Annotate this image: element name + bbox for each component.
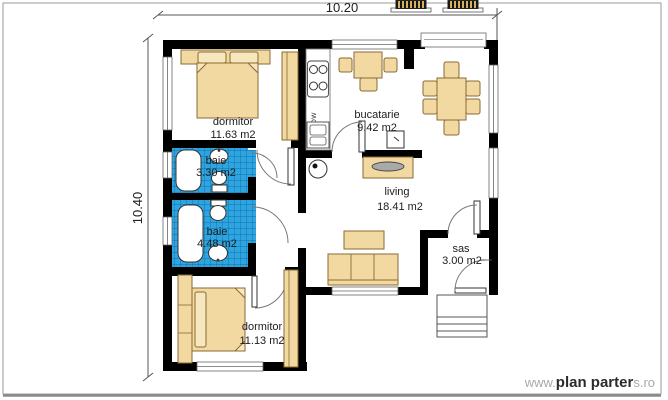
label-baie-large-name: baie [207, 226, 228, 238]
label-bucatarie-area: 9.42 m2 [357, 122, 397, 134]
watermark: www.plan parters.ro [524, 374, 655, 391]
label-dormitor-top-area: 11.63 m2 [210, 129, 255, 141]
dimension-top-width: 10.20 [326, 0, 359, 15]
door-bath-large [252, 207, 288, 243]
dimension-left-height: 10.40 [130, 192, 145, 225]
kitchen-table [354, 52, 382, 78]
label-sas-area: 3.00 m2 [442, 255, 482, 267]
window-dining-right [489, 65, 498, 133]
floor-plan-screenshot: 10.20 10.40 [0, 0, 668, 400]
entrance-steps [437, 295, 487, 337]
page-frame [3, 3, 661, 396]
watermark-brand: plan parter [556, 374, 634, 391]
stove-fireplace [309, 160, 327, 178]
chimney-symbols [391, 1, 483, 13]
window-bath-small [163, 152, 172, 178]
door-living-sas [448, 201, 480, 234]
label-dormitor-bottom-area: 11.13 m2 [239, 335, 284, 347]
living-furniture [309, 157, 413, 285]
wardrobe-bottom-right [284, 270, 298, 367]
kitchen-furniture: DW [306, 49, 404, 150]
window-kitchen [332, 40, 397, 49]
door-bedroom-bottom [252, 276, 287, 308]
window-living-right [489, 148, 498, 198]
window-bedroom-top [163, 57, 172, 130]
floor-plan-canvas: 10.20 10.40 [0, 0, 668, 400]
label-baie-small-area: 3.30 m2 [196, 167, 236, 179]
label-living-area: 18.41 m2 [377, 201, 423, 213]
wardrobe-top [282, 52, 298, 140]
toilet-large [210, 206, 226, 221]
tv [372, 162, 404, 171]
label-living-name: living [384, 186, 409, 198]
bathtub-large [178, 205, 203, 262]
window-bedroom-bottom [197, 362, 263, 371]
door-bedroom-top [257, 148, 294, 185]
window-living-bottom [332, 287, 398, 295]
watermark-suffix: s.ro [633, 375, 655, 390]
sofa [328, 254, 398, 285]
window-dining-bay [421, 33, 486, 47]
window-bath-large [163, 217, 172, 245]
wardrobe-bottom-left [178, 275, 192, 363]
label-baie-small-name: baie [206, 155, 227, 167]
label-bucatarie-name: bucatarie [354, 109, 399, 121]
label-dormitor-top-name: dormitor [213, 116, 254, 128]
label-baie-large-area: 4.48 m2 [197, 238, 237, 250]
dining-furniture [423, 62, 480, 135]
label-sas-name: sas [452, 243, 470, 255]
coffee-table [344, 231, 384, 249]
dining-table [437, 78, 466, 120]
label-dormitor-bottom-name: dormitor [242, 321, 283, 333]
bed-top [197, 63, 258, 118]
bedroom-bottom-furniture [178, 270, 298, 367]
watermark-prefix: www. [524, 375, 556, 390]
